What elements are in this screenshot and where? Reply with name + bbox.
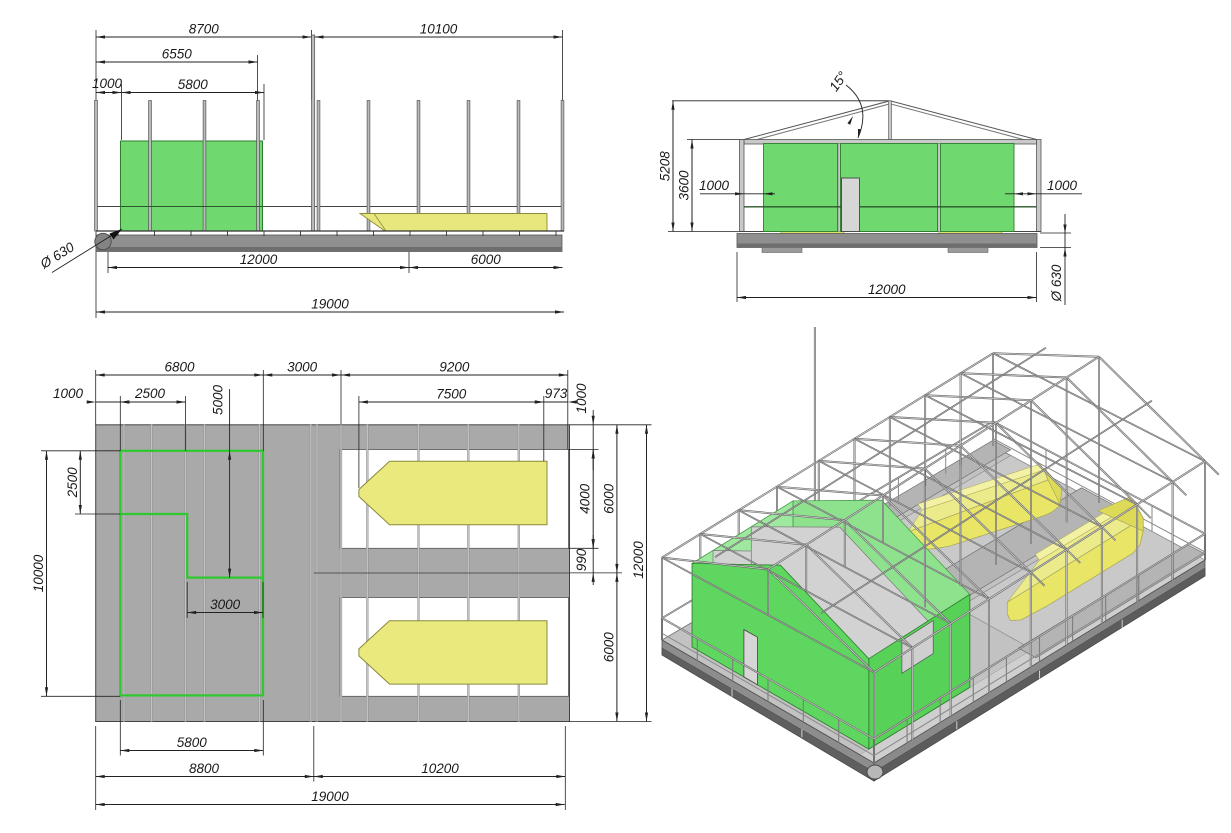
- svg-text:10100: 10100: [420, 22, 458, 37]
- svg-text:6000: 6000: [471, 252, 502, 267]
- svg-text:6000: 6000: [601, 483, 616, 514]
- svg-text:2500: 2500: [65, 467, 80, 499]
- svg-text:19000: 19000: [311, 789, 349, 804]
- svg-text:1000: 1000: [574, 383, 589, 414]
- svg-text:12000: 12000: [868, 282, 906, 297]
- svg-text:4000: 4000: [578, 483, 593, 514]
- svg-text:12000: 12000: [631, 541, 646, 579]
- svg-text:19000: 19000: [311, 297, 349, 312]
- svg-text:3000: 3000: [287, 360, 318, 375]
- svg-text:5800: 5800: [177, 735, 208, 750]
- svg-text:6550: 6550: [162, 47, 193, 62]
- svg-text:9200: 9200: [439, 360, 470, 375]
- svg-text:2500: 2500: [134, 386, 166, 401]
- svg-text:973: 973: [545, 386, 568, 401]
- svg-text:1000: 1000: [53, 386, 84, 401]
- svg-text:6000: 6000: [601, 632, 616, 663]
- svg-text:7500: 7500: [436, 387, 467, 402]
- svg-text:1000: 1000: [699, 178, 730, 193]
- svg-text:12000: 12000: [240, 252, 278, 267]
- svg-text:8800: 8800: [189, 761, 220, 776]
- svg-text:5800: 5800: [178, 77, 209, 92]
- svg-text:5000: 5000: [211, 384, 226, 415]
- svg-text:10200: 10200: [421, 761, 459, 776]
- svg-text:1000: 1000: [92, 76, 123, 91]
- svg-text:5208: 5208: [658, 151, 673, 182]
- svg-text:8700: 8700: [189, 22, 220, 37]
- svg-text:3000: 3000: [210, 597, 241, 612]
- svg-text:10000: 10000: [31, 554, 46, 592]
- svg-text:3600: 3600: [677, 170, 692, 201]
- svg-text:990: 990: [574, 548, 589, 571]
- svg-text:Ø 630: Ø 630: [1049, 264, 1064, 302]
- svg-text:1000: 1000: [1047, 178, 1078, 193]
- svg-text:6800: 6800: [164, 360, 195, 375]
